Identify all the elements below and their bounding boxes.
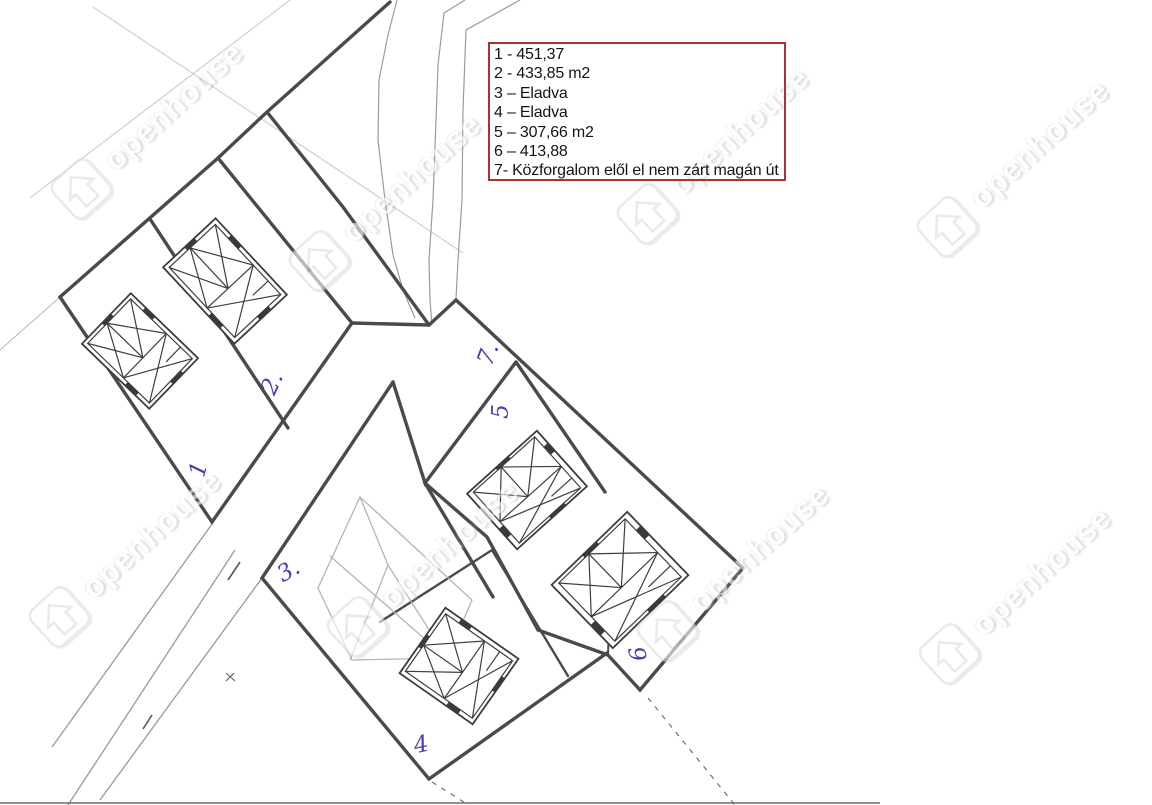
legend-box: 1 - 451,37 2 - 433,85 m2 3 – Eladva 4 – …	[488, 42, 786, 181]
house-plan-parcel-4	[400, 608, 519, 725]
legend-item-1: 1 - 451,37	[494, 45, 784, 64]
house-plan-parcel-2	[163, 218, 287, 343]
legend-item-6: 6 – 413,88	[494, 142, 784, 161]
legend-item-3: 3 – Eladva	[494, 84, 784, 103]
road-survey-ticks	[143, 562, 240, 729]
road-junction-corner	[429, 300, 456, 325]
house-plan-parcel-5	[467, 431, 587, 549]
road-junction-edge	[352, 323, 429, 325]
legend-item-2: 2 - 433,85 m2	[494, 64, 784, 83]
house-plan-parcel-6	[552, 512, 689, 648]
legend-item-7: 7- Közforgalom elől el nem zárt magán út	[494, 161, 784, 180]
house-plan-parcel-1	[82, 293, 198, 409]
road-corridor-edge	[267, 112, 429, 325]
legend-item-5: 5 – 307,66 m2	[494, 123, 784, 142]
private-road-thin-edges	[52, 524, 262, 805]
legend-item-4: 4 – Eladva	[494, 103, 784, 122]
scanned-site-plan: openhouse openhouse openhouse openhouse	[0, 0, 1152, 805]
parcel-3-5-corner-edges	[393, 362, 516, 483]
